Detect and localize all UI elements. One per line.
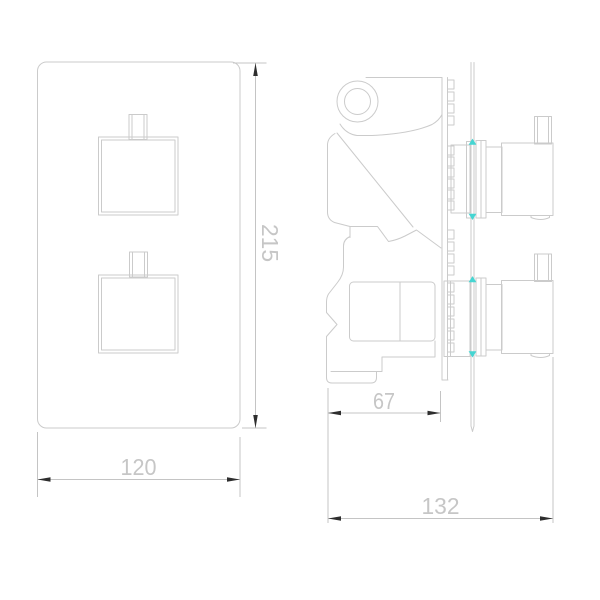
- lower-square-handle: [99, 252, 179, 353]
- arrowhead-right: [540, 516, 553, 520]
- body-bottom-steps: [331, 341, 435, 372]
- upper-side-handle: [469, 117, 553, 221]
- body-shoulder: [350, 227, 441, 249]
- inlet-port-inner-circle: [345, 89, 371, 115]
- lower-handle-inner-square: [102, 278, 176, 350]
- lower-handle-body: [502, 281, 554, 354]
- thread-mark: [448, 254, 455, 263]
- body-left-hull-lower: [327, 237, 377, 384]
- inlet-port-outer-circle: [337, 81, 378, 122]
- upper-handle-outer-square: [99, 137, 179, 215]
- faceplate-outline: [38, 62, 241, 428]
- lower-handle-side-tab-inner: [538, 254, 549, 282]
- body-upper-taper: [340, 115, 442, 136]
- lower-handle-stem: [486, 285, 502, 351]
- arrowhead-left: [328, 411, 341, 415]
- dimension-label-height: 215: [257, 224, 283, 262]
- upper-handle-inner-square: [102, 140, 176, 212]
- thread-mark: [448, 116, 455, 125]
- front-view: [38, 62, 241, 428]
- thread-mark: [448, 104, 455, 113]
- thread-mark: [448, 230, 455, 239]
- body-left-hull-upper: [328, 134, 351, 227]
- arrowhead-right: [227, 477, 240, 481]
- upper-handle-detent: [531, 216, 550, 220]
- upper-square-handle: [99, 115, 179, 216]
- thread-mark: [448, 80, 455, 89]
- body-taper-slant: [337, 133, 413, 227]
- lower-valve-block: [350, 282, 436, 341]
- wall-plane-line: [471, 63, 474, 432]
- side-view: [327, 63, 554, 432]
- thread-mark: [448, 242, 455, 251]
- lower-handle-tab-inner: [133, 252, 145, 277]
- upper-handle-body: [502, 143, 554, 216]
- arrowhead-up: [253, 63, 258, 76]
- upper-handle-stem: [486, 147, 502, 213]
- lower-handle-detent: [531, 354, 550, 358]
- lower-handle-outer-square: [99, 275, 179, 353]
- dimension-label-overall-depth: 132: [422, 493, 460, 519]
- datum-marker-icon: [469, 276, 477, 282]
- lower-side-handle: [469, 254, 553, 358]
- drawing-canvas: 215 120: [0, 0, 600, 600]
- dimension-overall-depth: 132: [328, 357, 553, 523]
- arrowhead-left: [328, 516, 341, 520]
- dimension-plate-width: 120: [38, 432, 241, 497]
- upper-handle-tab-inner: [132, 115, 144, 140]
- technical-drawing: 215 120: [0, 0, 600, 600]
- arrowhead-right: [428, 411, 441, 415]
- dimension-label-width: 120: [121, 454, 157, 480]
- arrowhead-left: [38, 477, 51, 481]
- thread-mark: [448, 266, 455, 275]
- dimension-label-body-depth: 67: [373, 388, 395, 414]
- datum-marker-icon: [469, 214, 477, 220]
- upper-handle-side-tab-inner: [538, 117, 549, 145]
- thread-mark: [448, 92, 455, 101]
- arrowhead-down: [253, 415, 258, 428]
